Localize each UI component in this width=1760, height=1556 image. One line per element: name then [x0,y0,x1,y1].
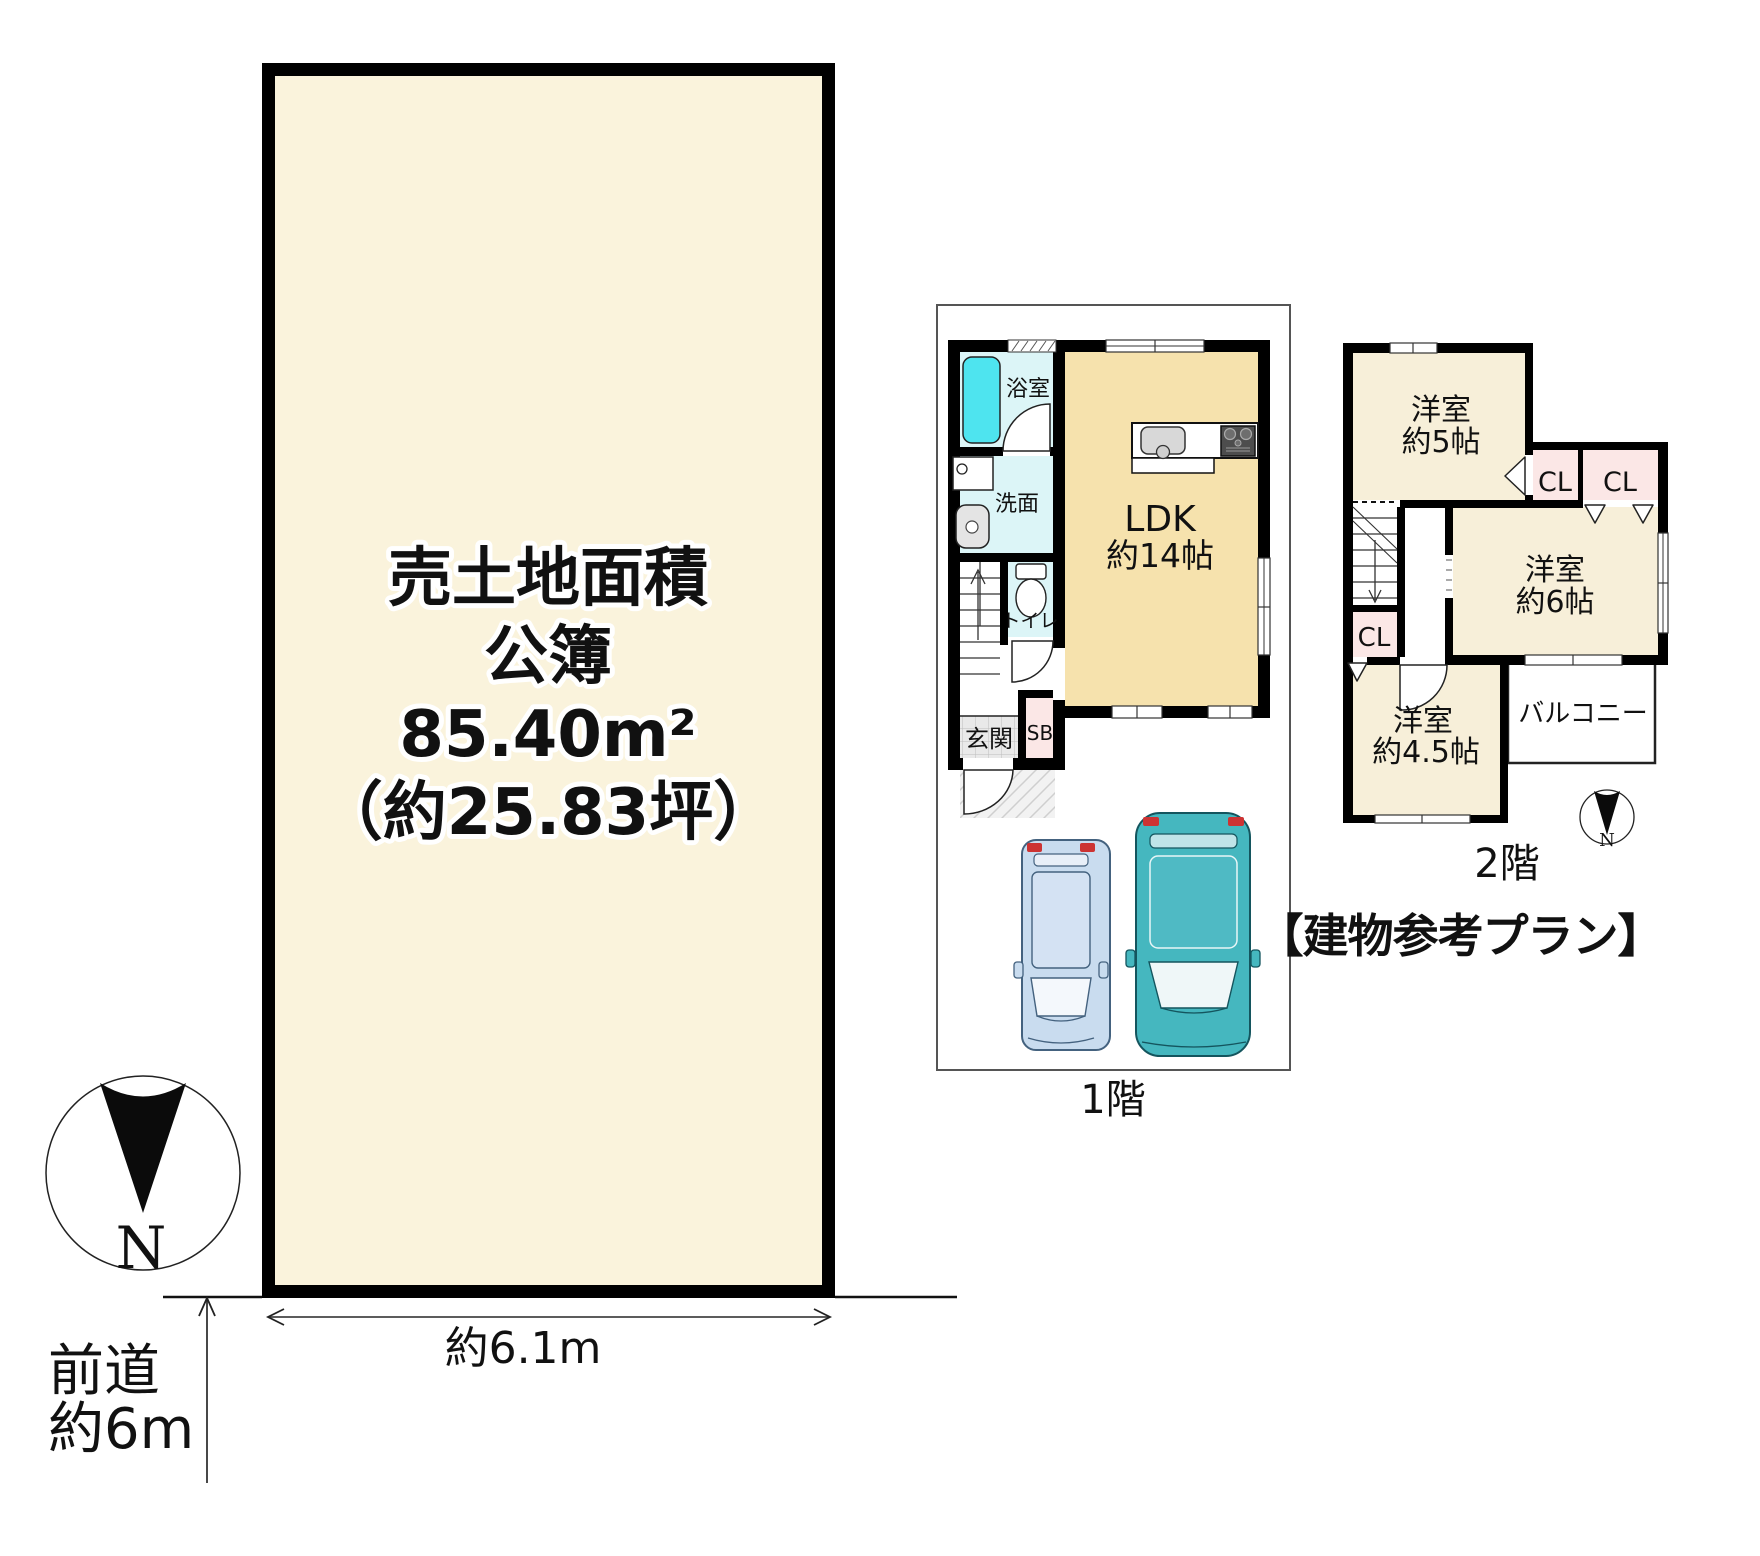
staircase-2f [1353,507,1397,602]
washer-pan [953,457,993,490]
floor2-caption: 2階 [1474,841,1539,887]
road-annotation: 前道 約6m [48,1298,215,1483]
site-plan-canvas: 売土地面積 公簿 85.40m² （約25.83坪） 約6.1m 前道 約6m … [0,0,1760,1556]
land-area-line1: 売土地面積 [388,542,708,616]
room6-label-line2: 約6帖 [1515,585,1594,620]
land-plot: 売土地面積 公簿 85.40m² （約25.83坪） [262,63,835,1298]
car-mirror [1014,962,1023,978]
land-area-line2: 公簿 [484,620,612,694]
tail-light-icon [1080,843,1095,852]
car-minivan [1014,840,1110,1050]
closet2-label: CL [1603,467,1637,498]
kitchen-faucet [1157,446,1170,459]
compass-n-label: N [116,1214,167,1282]
car-mirror [1099,962,1108,978]
room6-label-line1: 洋室 [1525,553,1585,588]
car-mirror [1126,950,1135,967]
ldk-label-line2: 約14帖 [1106,536,1214,575]
room45-label-line2: 約4.5帖 [1372,735,1480,770]
closet3-label: CL [1358,623,1391,653]
plan-drawing: 売土地面積 公簿 85.40m² （約25.83坪） 約6.1m 前道 約6m … [0,0,1760,1556]
shoe-box-label: SB [1027,721,1053,745]
ldk-label-line1: LDK [1124,499,1197,540]
north-compass-site: N [46,1076,240,1282]
tail-light-icon [1228,817,1244,826]
frontage-label: 約6.1m [445,1323,602,1374]
room45-label-line1: 洋室 [1393,704,1453,739]
entrance-label: 玄関 [965,725,1013,753]
reference-plan-title: 【建物参考プラン】 [1258,909,1663,963]
wash-basin [956,505,989,548]
frontage-dimension: 約6.1m [268,1309,830,1374]
room5-label-line2: 約5帖 [1401,425,1480,460]
bath-label: 浴室 [1006,377,1050,402]
compass-n-label: N [1599,830,1615,851]
closet1-label: CL [1538,467,1572,498]
floor1-caption: 1階 [1080,1077,1145,1123]
stove-icon [1221,426,1255,456]
bathtub [963,357,1000,443]
road-label-line2: 約6m [48,1397,194,1462]
balcony-label: バルコニー [1518,699,1647,729]
tail-light-icon [1143,817,1159,826]
north-compass-plan: N [1580,790,1634,851]
road-label-line1: 前道 [48,1339,160,1404]
floor2-plan: 洋室 約5帖 洋室 約6帖 洋室 約4.5帖 CL CL CL バルコニー 2階… [1343,343,1668,887]
floor1-plan: 浴室 洗面 トイレ 玄関 SB LDK 約14帖 [937,305,1290,1123]
toilet-label: トイレ [1001,610,1058,632]
room5-label-line1: 洋室 [1411,393,1471,428]
tail-light-icon [1027,843,1042,852]
land-area-line4: （約25.83坪） [319,776,777,850]
land-area-line3: 85.40m² [399,698,696,772]
car-suv [1126,813,1260,1056]
wash-label: 洗面 [995,492,1039,517]
